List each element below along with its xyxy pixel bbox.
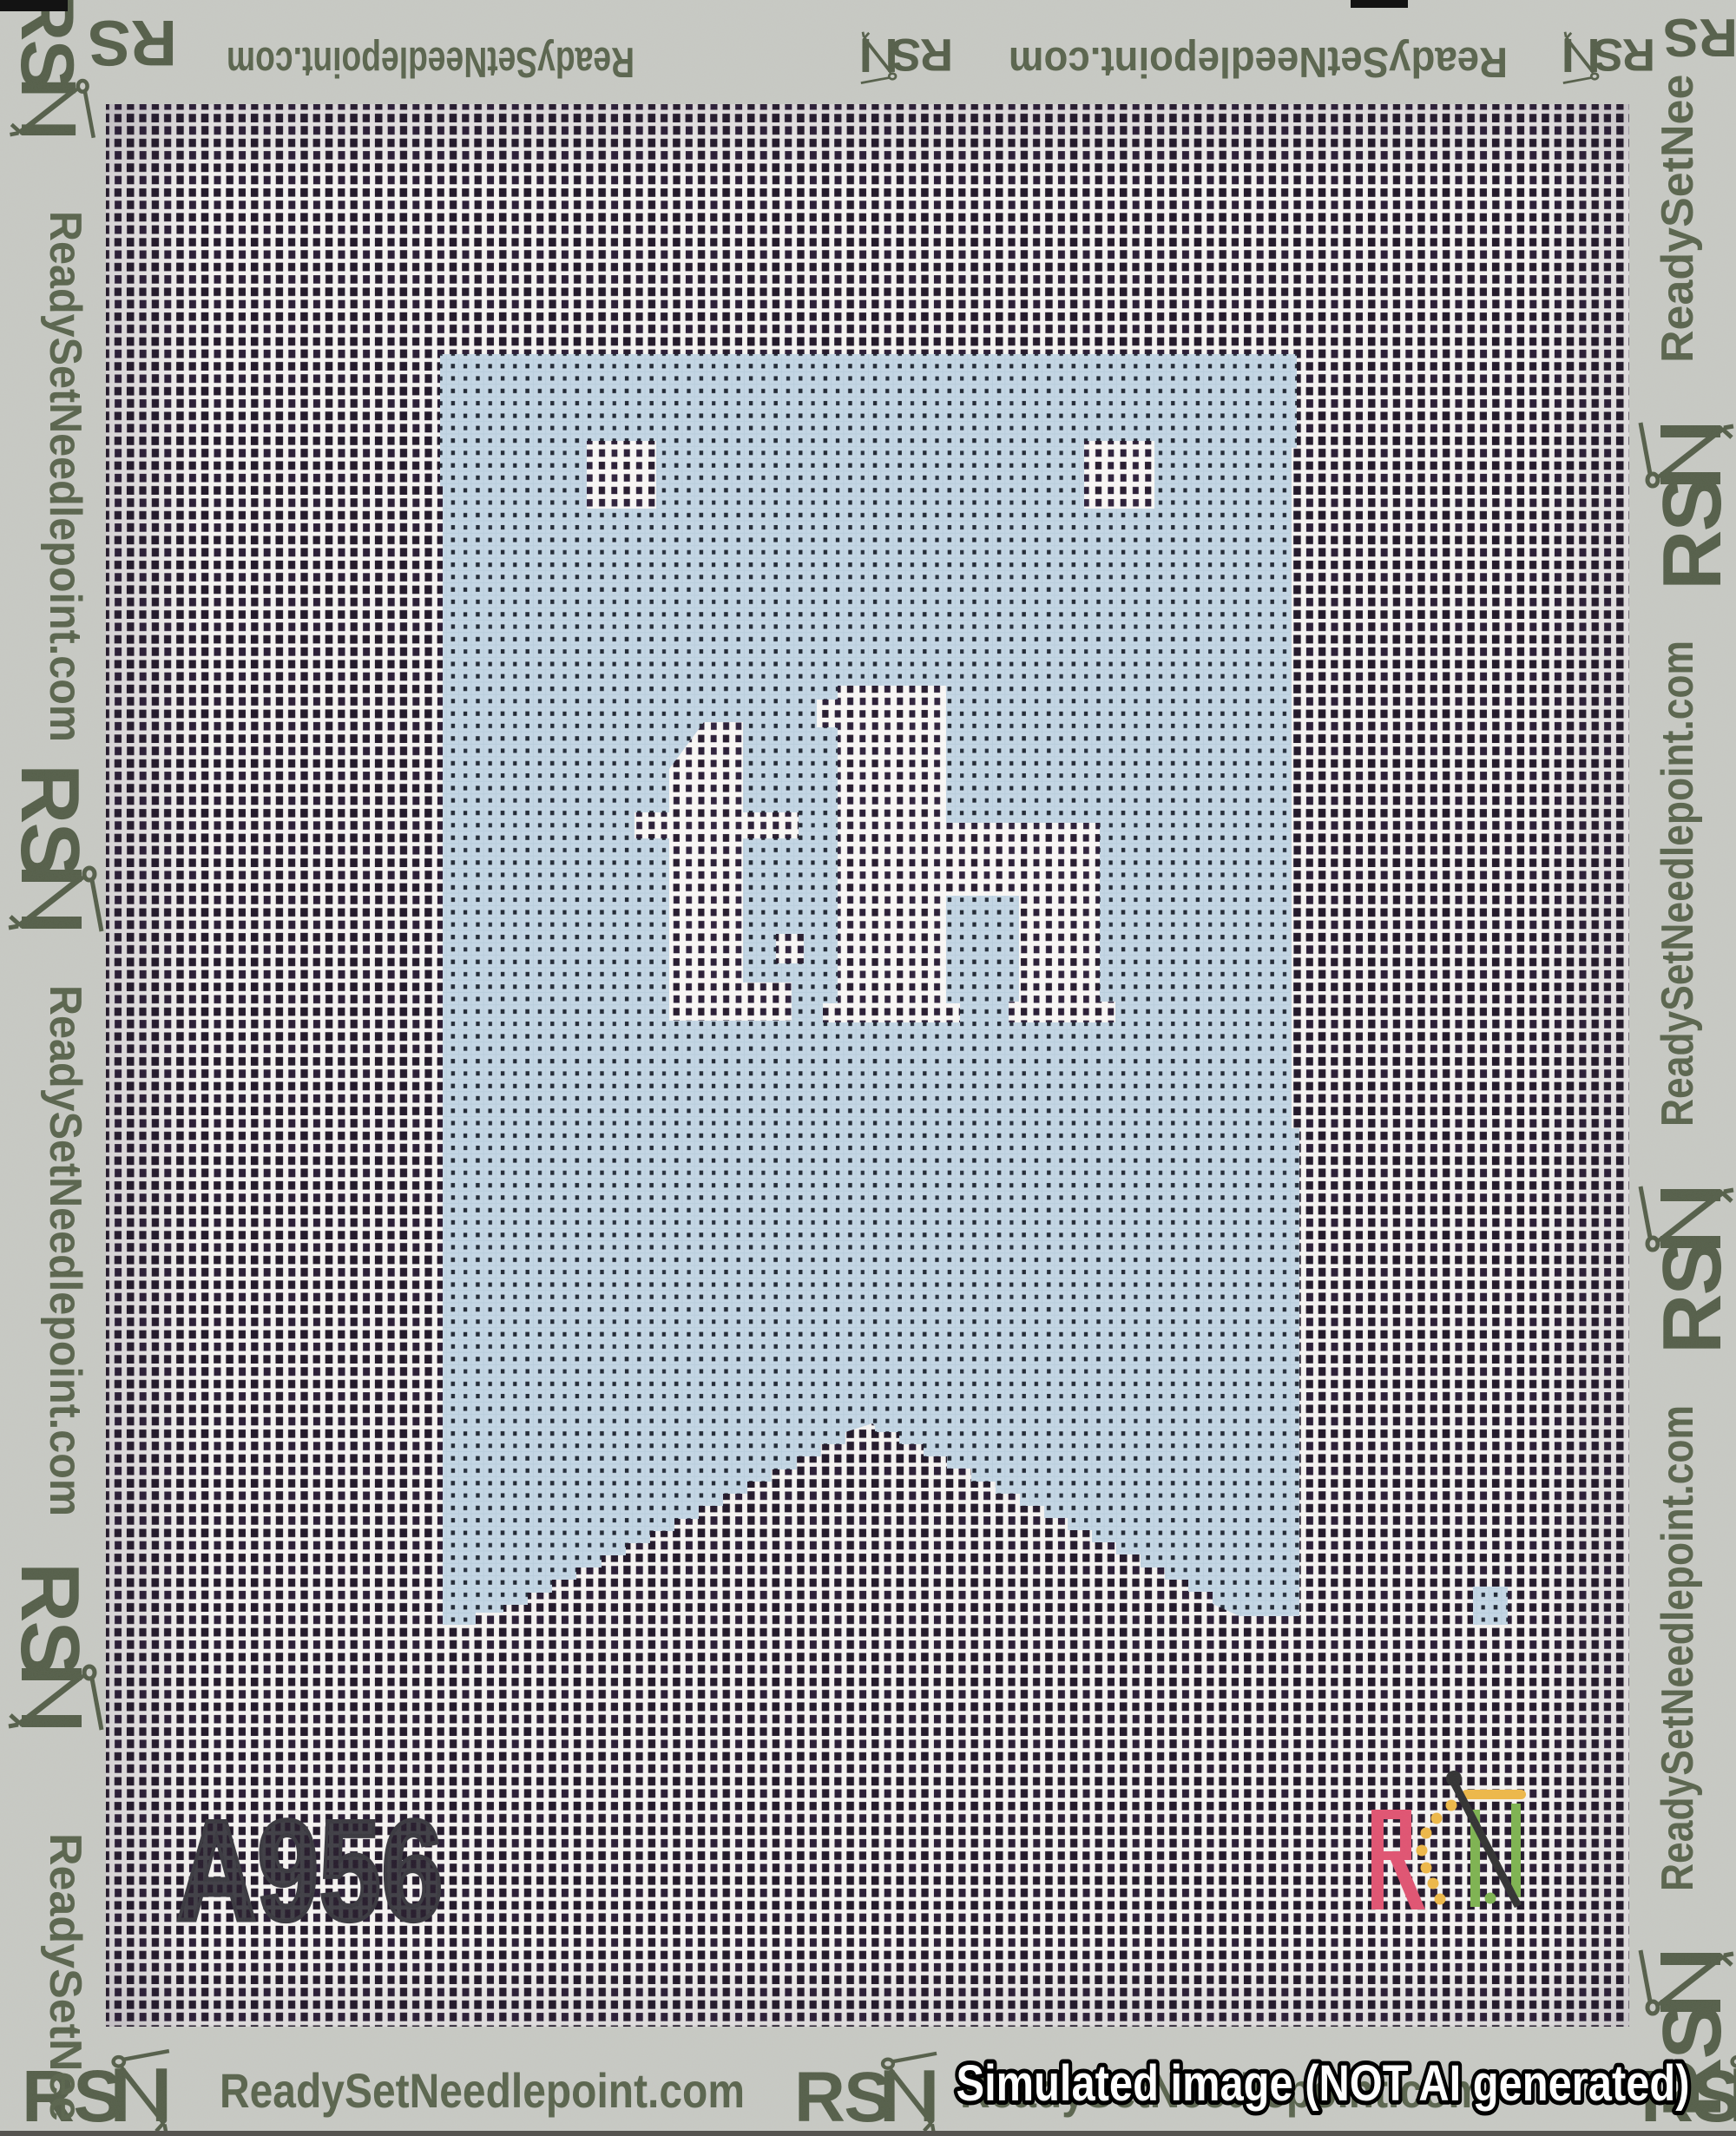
svg-text:Simulated image (NOT AI genera: Simulated image (NOT AI generated) — [957, 2055, 1690, 2112]
